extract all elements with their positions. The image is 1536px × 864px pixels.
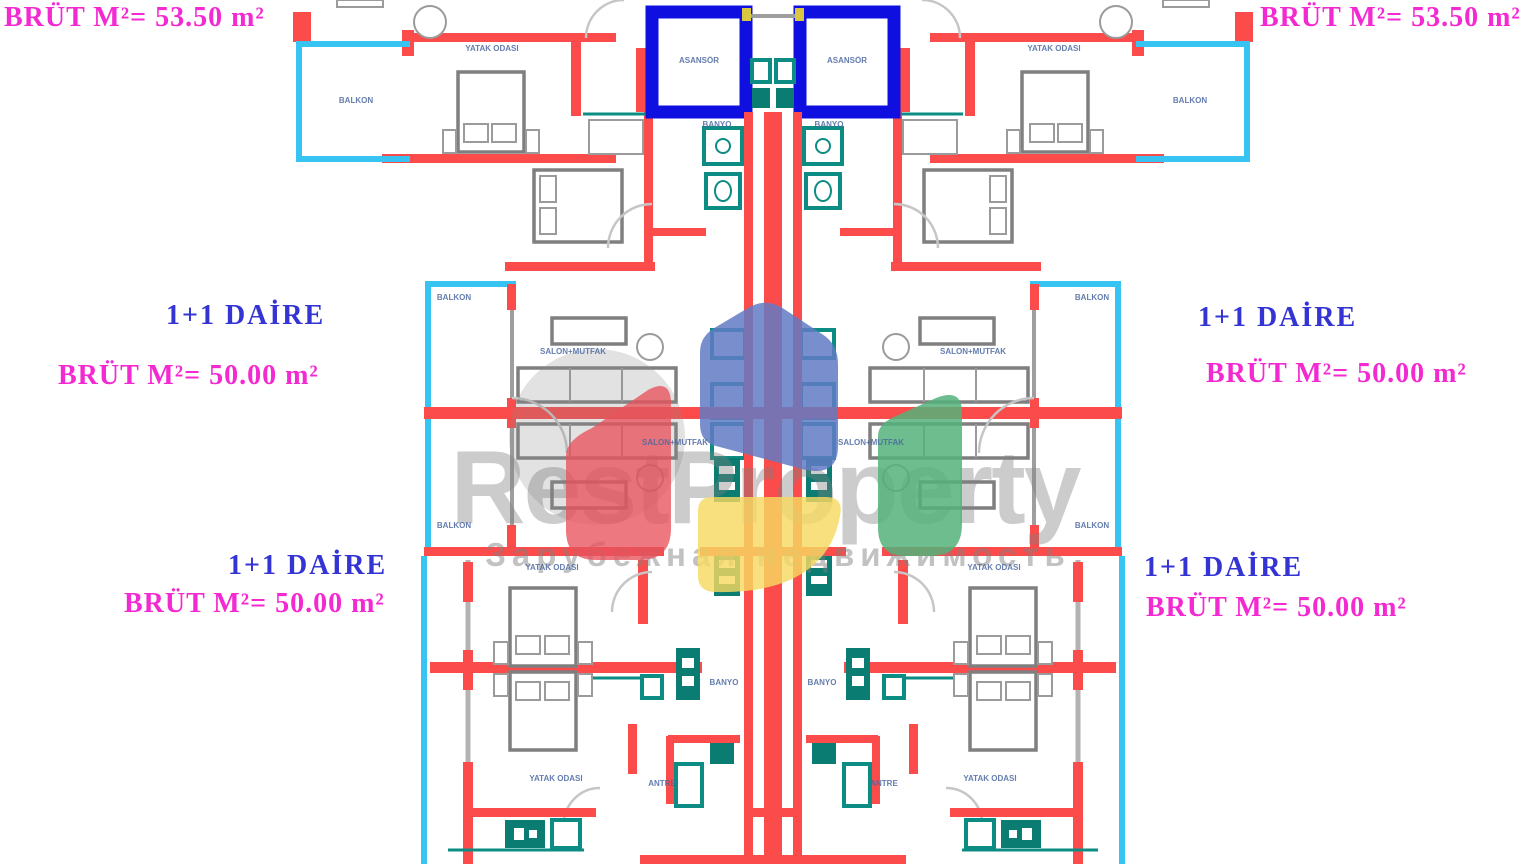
unit-type-label-bottom-right: 1+1 DAİRE bbox=[1144, 552, 1303, 584]
unit-type-label-bottom-left: 1+1 DAİRE bbox=[228, 550, 387, 582]
unit-type-label-mid-right: 1+1 DAİRE bbox=[1198, 302, 1357, 334]
bottom-apartment bbox=[430, 560, 773, 864]
unit-area-label-top-left: BRÜT M²= 53.50 m² bbox=[4, 2, 265, 34]
room-label-elevator: ASANSÖR bbox=[810, 56, 884, 65]
room-label-balcony: BALKON bbox=[1062, 521, 1122, 530]
room-label-elevator: ASANSÖR bbox=[662, 56, 736, 65]
room-label-bedroom: YATAK ODASI bbox=[512, 563, 592, 572]
room-label-bedroom: YATAK ODASI bbox=[954, 563, 1034, 572]
room-label-balcony: BALKON bbox=[1062, 293, 1122, 302]
room-label-bedroom: YATAK ODASI bbox=[950, 774, 1030, 783]
room-label-living: SALON+MUTFAK bbox=[928, 347, 1018, 356]
room-label-bathroom: BANYO bbox=[800, 120, 858, 129]
unit-area-label-bottom-right: BRÜT M²= 50.00 m² bbox=[1146, 592, 1407, 624]
room-label-bathroom: BANYO bbox=[688, 120, 746, 129]
room-label-hall: ANTRE bbox=[858, 779, 910, 788]
floor-plan-page: RestProperty Зарубежная недвижимость BRÜ… bbox=[0, 0, 1536, 864]
floor-plan-drawing: RestProperty Зарубежная недвижимость bbox=[0, 0, 1536, 864]
unit-area-label-mid-right: BRÜT M²= 50.00 m² bbox=[1206, 358, 1467, 390]
unit-area-label-top-right: BRÜT M²= 53.50 m² bbox=[1260, 2, 1521, 34]
room-label-balcony: BALKON bbox=[424, 293, 484, 302]
room-label-bedroom: YATAK ODASI bbox=[452, 44, 532, 53]
room-label-living: SALON+MUTFAK bbox=[528, 347, 618, 356]
room-label-bedroom: YATAK ODASI bbox=[516, 774, 596, 783]
room-label-living: SALON+MUTFAK bbox=[630, 438, 720, 447]
room-label-balcony: BALKON bbox=[424, 521, 484, 530]
room-label-bathroom: BANYO bbox=[798, 678, 846, 687]
room-label-balcony: BALKON bbox=[320, 96, 392, 105]
room-label-living: SALON+MUTFAK bbox=[826, 438, 916, 447]
unit-area-label-mid-left: BRÜT M²= 50.00 m² bbox=[58, 360, 319, 392]
watermark-logo-right-shape bbox=[878, 395, 962, 556]
room-label-balcony: BALKON bbox=[1154, 96, 1226, 105]
unit-area-label-bottom-left: BRÜT M²= 50.00 m² bbox=[124, 588, 385, 620]
bathroom-top bbox=[652, 128, 742, 236]
room-label-bedroom: YATAK ODASI bbox=[1014, 44, 1094, 53]
watermark-logo-roof-shape bbox=[700, 303, 838, 471]
room-label-bathroom: BANYO bbox=[700, 678, 748, 687]
room-label-hall: ANTRE bbox=[636, 779, 688, 788]
unit-type-label-mid-left: 1+1 DAİRE bbox=[166, 300, 325, 332]
